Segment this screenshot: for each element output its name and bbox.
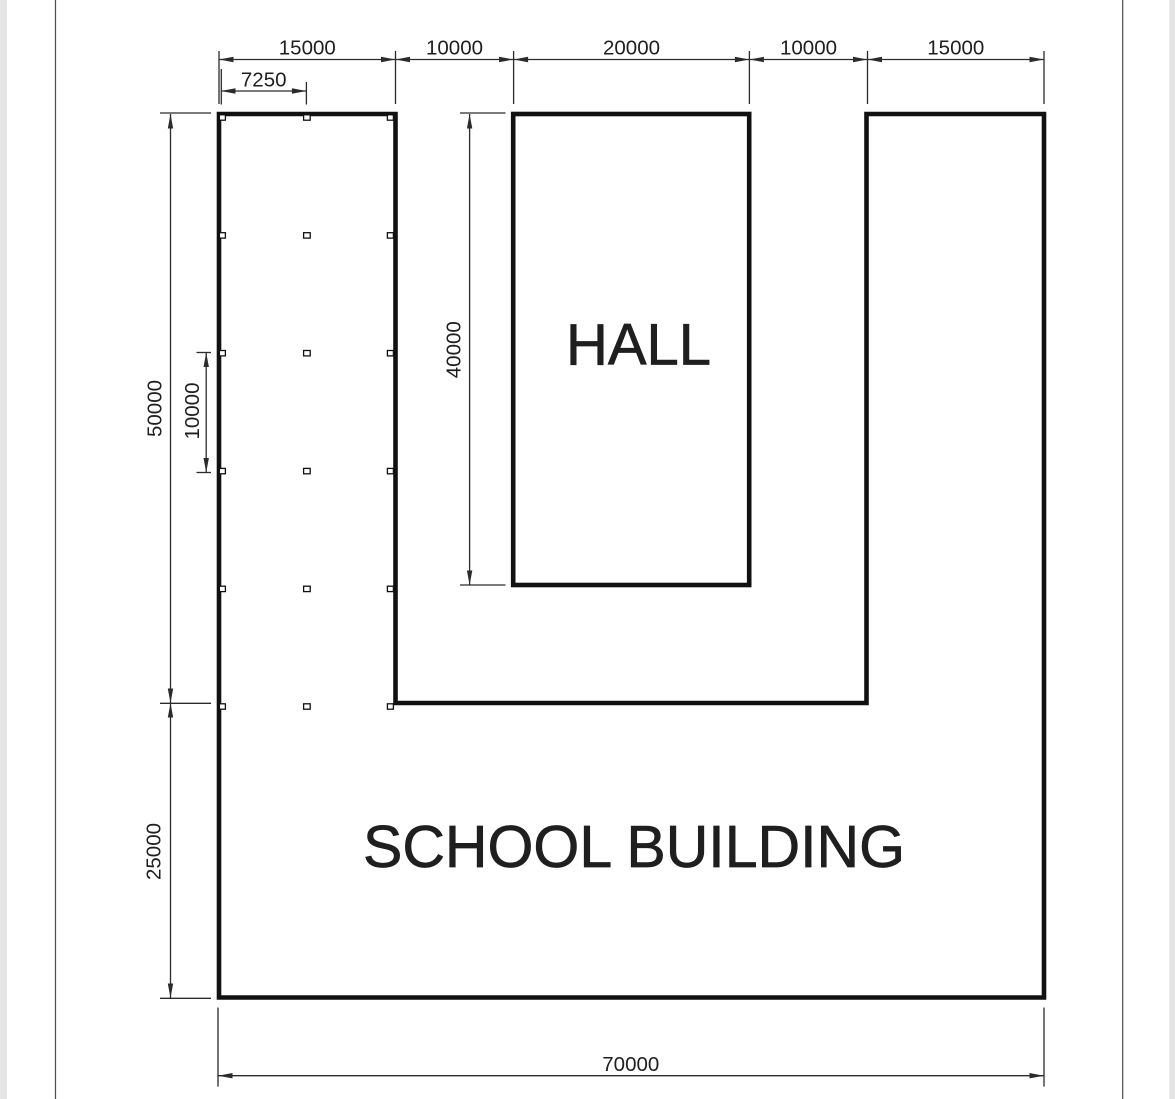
svg-text:25000: 25000 xyxy=(143,823,166,880)
svg-text:40000: 40000 xyxy=(443,321,466,378)
svg-text:20000: 20000 xyxy=(603,37,660,60)
svg-text:7250: 7250 xyxy=(241,69,287,92)
svg-text:15000: 15000 xyxy=(927,37,984,60)
svg-text:10000: 10000 xyxy=(780,37,837,60)
svg-text:10000: 10000 xyxy=(181,382,204,439)
svg-text:50000: 50000 xyxy=(144,380,167,437)
svg-text:HALL: HALL xyxy=(566,313,711,378)
svg-text:10000: 10000 xyxy=(426,37,483,60)
svg-text:15000: 15000 xyxy=(279,37,336,60)
svg-text:70000: 70000 xyxy=(602,1053,659,1076)
svg-text:SCHOOL BUILDING: SCHOOL BUILDING xyxy=(363,814,905,880)
